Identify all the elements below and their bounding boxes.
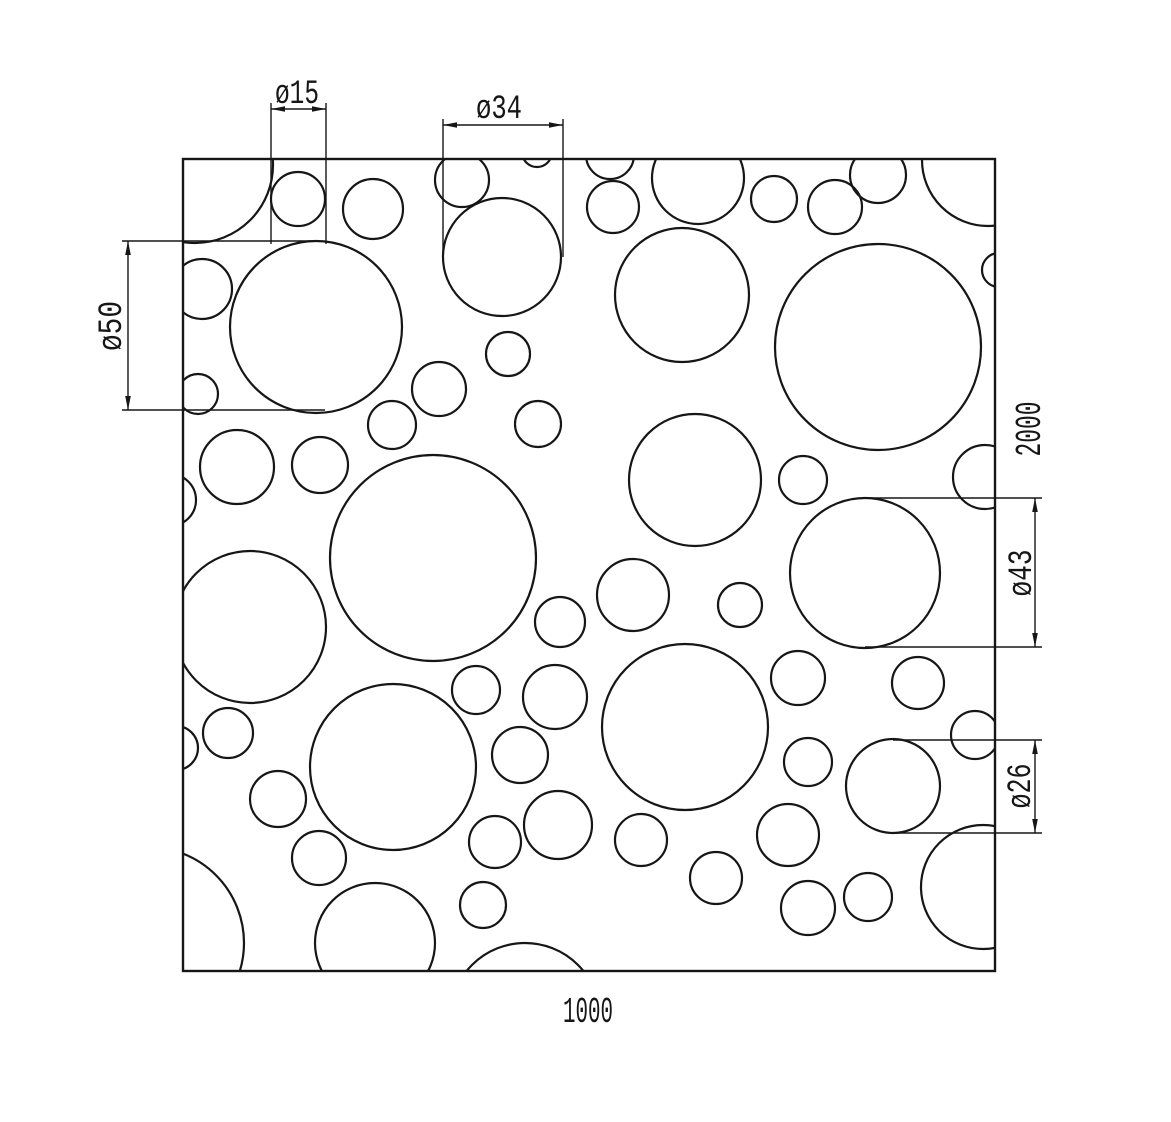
hole-circle [629, 414, 761, 546]
dimension-text: ø43 [1004, 550, 1042, 597]
hole-circle [953, 445, 1017, 509]
dimension-text: ø50 [94, 301, 132, 351]
hole-circle [452, 666, 500, 714]
dimension-dia-43: ø43 [865, 498, 1042, 647]
hole-circle [292, 831, 346, 885]
hole-circle [271, 172, 325, 226]
hole-circle [587, 181, 639, 233]
hole-circle [203, 708, 253, 758]
hole-circle [757, 804, 819, 866]
dimension-dia-26: ø26 [893, 740, 1042, 833]
dimension-arrowhead-icon [125, 396, 131, 410]
hole-circle [144, 474, 196, 526]
hole-circle [230, 241, 402, 413]
labels-group: 10002000 [563, 402, 1051, 1034]
technical-drawing-canvas: ø15ø34ø50ø43ø26 10002000 [0, 0, 1171, 1122]
hole-circle [515, 401, 561, 447]
hole-circle [892, 657, 944, 709]
dimension-arrowhead-icon [1032, 819, 1038, 833]
hole-circle [52, 847, 244, 1039]
hole-circle [784, 738, 832, 786]
drawing-page: ø15ø34ø50ø43ø26 10002000 [0, 0, 1171, 1122]
hole-circle [292, 437, 348, 493]
dimension-dia-50: ø50 [94, 241, 325, 410]
hole-circle [844, 873, 892, 921]
hole-circle [523, 665, 587, 729]
hole-circle [412, 362, 466, 416]
hole-circle [310, 684, 476, 850]
dimension-text: ø34 [476, 91, 522, 129]
hole-circle [524, 791, 592, 859]
hole-circle [615, 814, 667, 866]
hole-circle [443, 198, 561, 316]
hole-circle [460, 882, 506, 928]
hole-circle [117, 87, 273, 243]
hole-circle [790, 498, 940, 648]
dimension-arrowhead-icon [1032, 740, 1038, 754]
hole-circle [154, 726, 198, 770]
hole-circle [172, 259, 232, 319]
hole-circle [718, 583, 762, 627]
hole-circle [486, 332, 530, 376]
hole-circle [597, 559, 669, 631]
hole-circle [174, 551, 326, 703]
hole-circle [921, 825, 1045, 949]
hole-circle [368, 401, 416, 449]
hole-circle [250, 771, 306, 827]
hole-circle [751, 176, 797, 222]
hole-circle [850, 147, 906, 203]
hole-circle [330, 455, 536, 661]
hole-circle [535, 597, 585, 647]
hole-circle [315, 883, 435, 1003]
hole-circle [522, 137, 552, 167]
hole-circle [846, 739, 940, 833]
hole-circle [982, 253, 1016, 287]
hole-circle [602, 644, 768, 810]
hole-circle [343, 179, 403, 239]
hole-circle [615, 228, 749, 362]
dimension-arrowhead-icon [125, 241, 131, 255]
dimension-arrowhead-icon [443, 122, 457, 128]
hole-circle [652, 132, 744, 224]
dimension-text: ø15 [275, 76, 319, 114]
hole-circle [771, 651, 825, 705]
height-label: 2000 [1010, 402, 1051, 457]
hole-circle [781, 881, 835, 935]
panel-outline [183, 159, 995, 971]
dimension-arrowhead-icon [549, 122, 563, 128]
hole-circle [779, 456, 827, 504]
dimension-arrowhead-icon [1032, 498, 1038, 512]
hole-circle [690, 852, 742, 904]
hole-circle [951, 711, 999, 759]
dimension-arrowhead-icon [1032, 633, 1038, 647]
dimension-text: ø26 [1003, 764, 1041, 809]
hole-circle [775, 244, 981, 450]
dimension-text: 1000 [563, 992, 613, 1033]
hole-circle [200, 430, 274, 504]
hole-circle [469, 816, 521, 868]
hole-circle [586, 131, 634, 179]
width-label: 1000 [563, 992, 613, 1033]
holes-group [52, 87, 1054, 1093]
dimension-text: 2000 [1010, 402, 1051, 457]
hole-circle [492, 727, 548, 783]
dimension-dia-34: ø34 [443, 91, 563, 257]
dimensions-group: ø15ø34ø50ø43ø26 [94, 76, 1042, 833]
